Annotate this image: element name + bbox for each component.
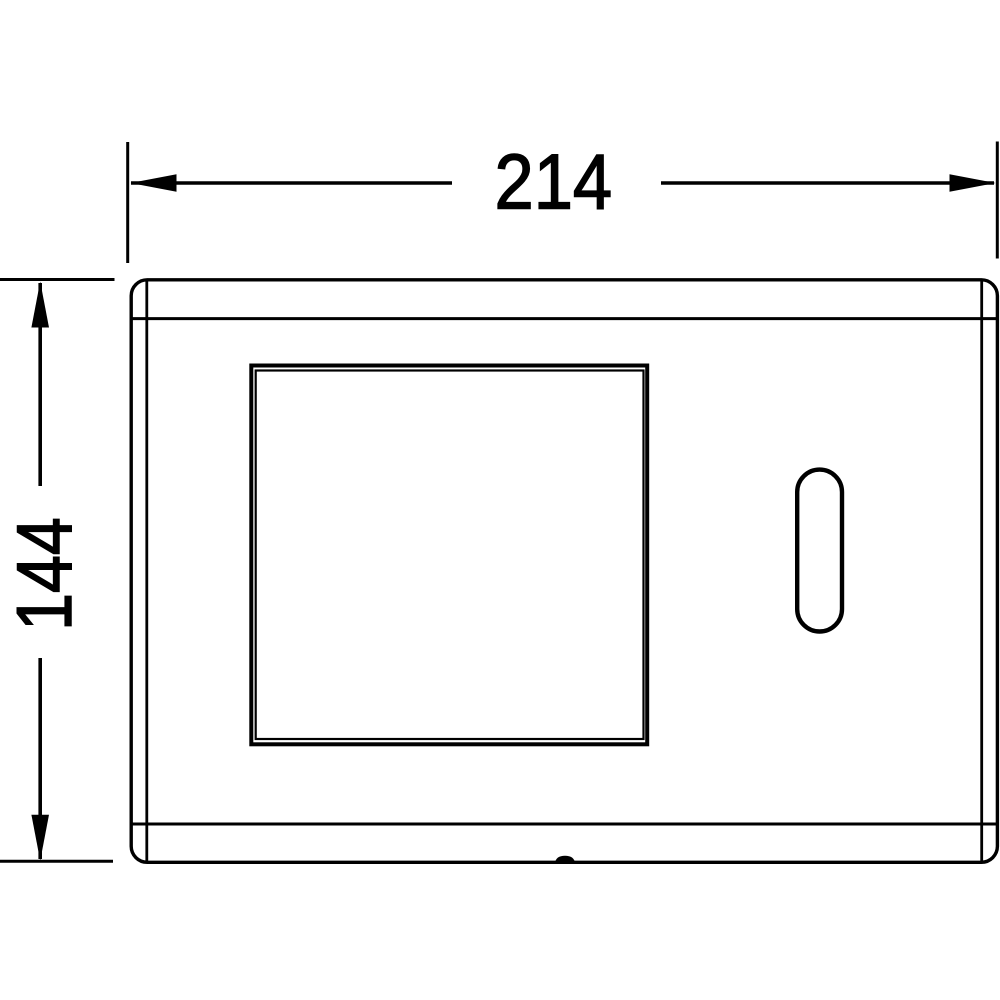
svg-text:144: 144 <box>1 517 88 631</box>
svg-text:214: 214 <box>495 138 613 225</box>
